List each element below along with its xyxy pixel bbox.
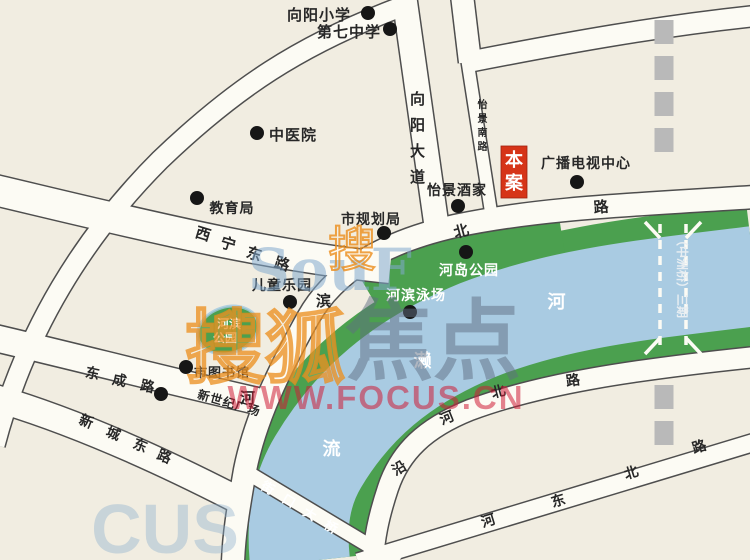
- yijing-south-road-label-char-2: 南: [478, 126, 489, 139]
- broadcast-tv-center-dot: [570, 175, 584, 189]
- river-name-char-2: 流: [323, 438, 342, 459]
- zhongzhou-bridge-label: （中洲桥）三期: [675, 234, 690, 318]
- xiangyang-primary-school-dot: [361, 6, 375, 20]
- chinese-medicine-hospital-label: 中医院: [269, 126, 317, 144]
- location-map: 河滨公园河滨北路沿河北路河东北路西宁东路东成路新城东路向阳大道怡景南路河濑流街口…: [0, 0, 750, 560]
- xiangyang-avenue-label-char-1: 阳: [410, 117, 426, 134]
- xiangyang-avenue-label-char-2: 大: [410, 142, 426, 160]
- yijing-south-road-label-char-3: 路: [478, 140, 489, 153]
- chinese-medicine-hospital-dot: [250, 126, 264, 140]
- yanhe-north-road-label-char-3: 路: [565, 371, 582, 389]
- river-name-char-0: 河: [548, 292, 567, 312]
- watermark-sohu-char-small: 搜: [328, 224, 376, 277]
- broadcast-tv-center-label: 广播电视中心: [541, 155, 631, 171]
- yijing-restaurant-label: 怡景酒家: [427, 182, 487, 198]
- river-island-park-dot: [459, 245, 473, 259]
- watermark-focus-url: WWW.FOCUS.CN: [227, 379, 524, 416]
- xiangyang-primary-school-label: 向阳小学: [287, 6, 351, 24]
- yijing-restaurant-dot: [451, 199, 465, 213]
- benan-marker-char-1: 案: [504, 172, 524, 193]
- education-bureau-dot: [190, 191, 204, 205]
- hebin-north-road-label-char-3: 路: [593, 197, 611, 216]
- yijing-south-road-label-char-0: 怡: [478, 98, 489, 111]
- yijing-south-road-label-char-1: 景: [478, 113, 489, 125]
- benan-marker-char-0: 本: [505, 149, 523, 170]
- watermark-focus-chars: 焦点: [345, 292, 521, 391]
- no7-middle-school-dot: [383, 22, 397, 36]
- no7-middle-school-label: 第七中学: [317, 23, 381, 41]
- education-bureau-label: 教育局: [210, 200, 255, 216]
- new-century-plaza-dot: [154, 387, 168, 401]
- river-island-park-label: 河岛公园: [439, 262, 499, 278]
- xiangyang-avenue-label-char-0: 向: [410, 90, 426, 108]
- watermark-focus-partial: CUS: [91, 490, 239, 560]
- xiangyang-avenue-label-char-3: 道: [410, 168, 426, 186]
- map-svg: 河滨公园河滨北路沿河北路河东北路西宁东路东成路新城东路向阳大道怡景南路河濑流街口…: [0, 0, 750, 560]
